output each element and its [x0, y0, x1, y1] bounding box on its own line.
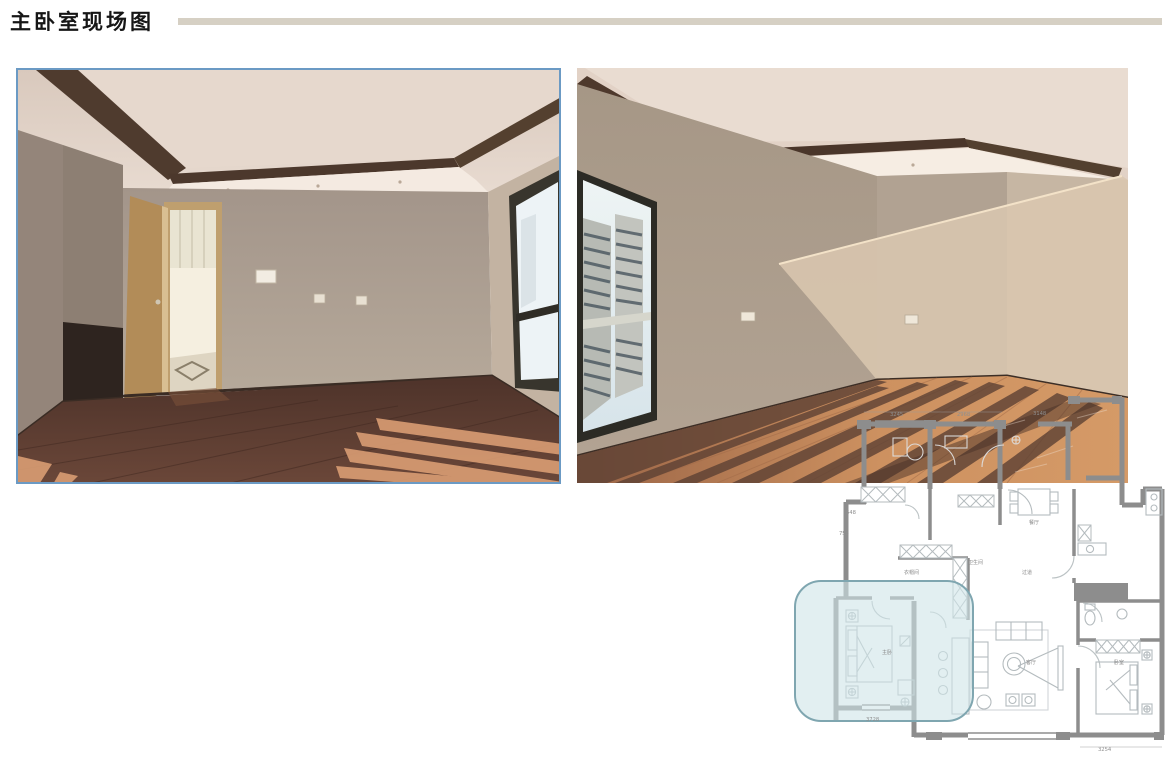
floor-plan: 衣帽间 卫生间 餐厅 过道 主卧 客厅 卧室 3245 2968 3148 64… [780, 393, 1170, 760]
closet-bedroom2 [1096, 640, 1140, 653]
closet-hall [900, 545, 952, 558]
room-label: 卧室 [1114, 659, 1124, 666]
closet-entry [861, 487, 905, 502]
dim-label: 3254 [1098, 747, 1112, 753]
open-door [124, 196, 222, 406]
page-title: 主卧室现场图 [10, 6, 154, 36]
room-label: 餐厅 [1029, 519, 1039, 526]
slide-page: 主卧室现场图 [0, 0, 1170, 760]
room-label: 主卧 [882, 649, 892, 656]
photo-master-bedroom-door-view [16, 68, 561, 484]
dim-label: 2968 [957, 412, 970, 418]
photo-1-art [18, 70, 561, 484]
dim-label: 3148 [1033, 411, 1046, 417]
window [509, 168, 561, 392]
room-label: 客厅 [1026, 659, 1036, 666]
closet-kitchen [1078, 525, 1091, 541]
room-label: 卫生间 [968, 559, 983, 566]
title-rule [178, 18, 1162, 25]
closet-corridor [958, 495, 994, 507]
dim-label: 3245 [890, 412, 903, 418]
window-with-city-view [577, 170, 657, 443]
dim-label: 3728 [866, 717, 879, 723]
room-label: 衣帽间 [904, 569, 919, 576]
room-label: 过道 [1022, 569, 1032, 576]
dim-label: 756 [839, 531, 849, 537]
dim-label: 648 [846, 510, 856, 516]
